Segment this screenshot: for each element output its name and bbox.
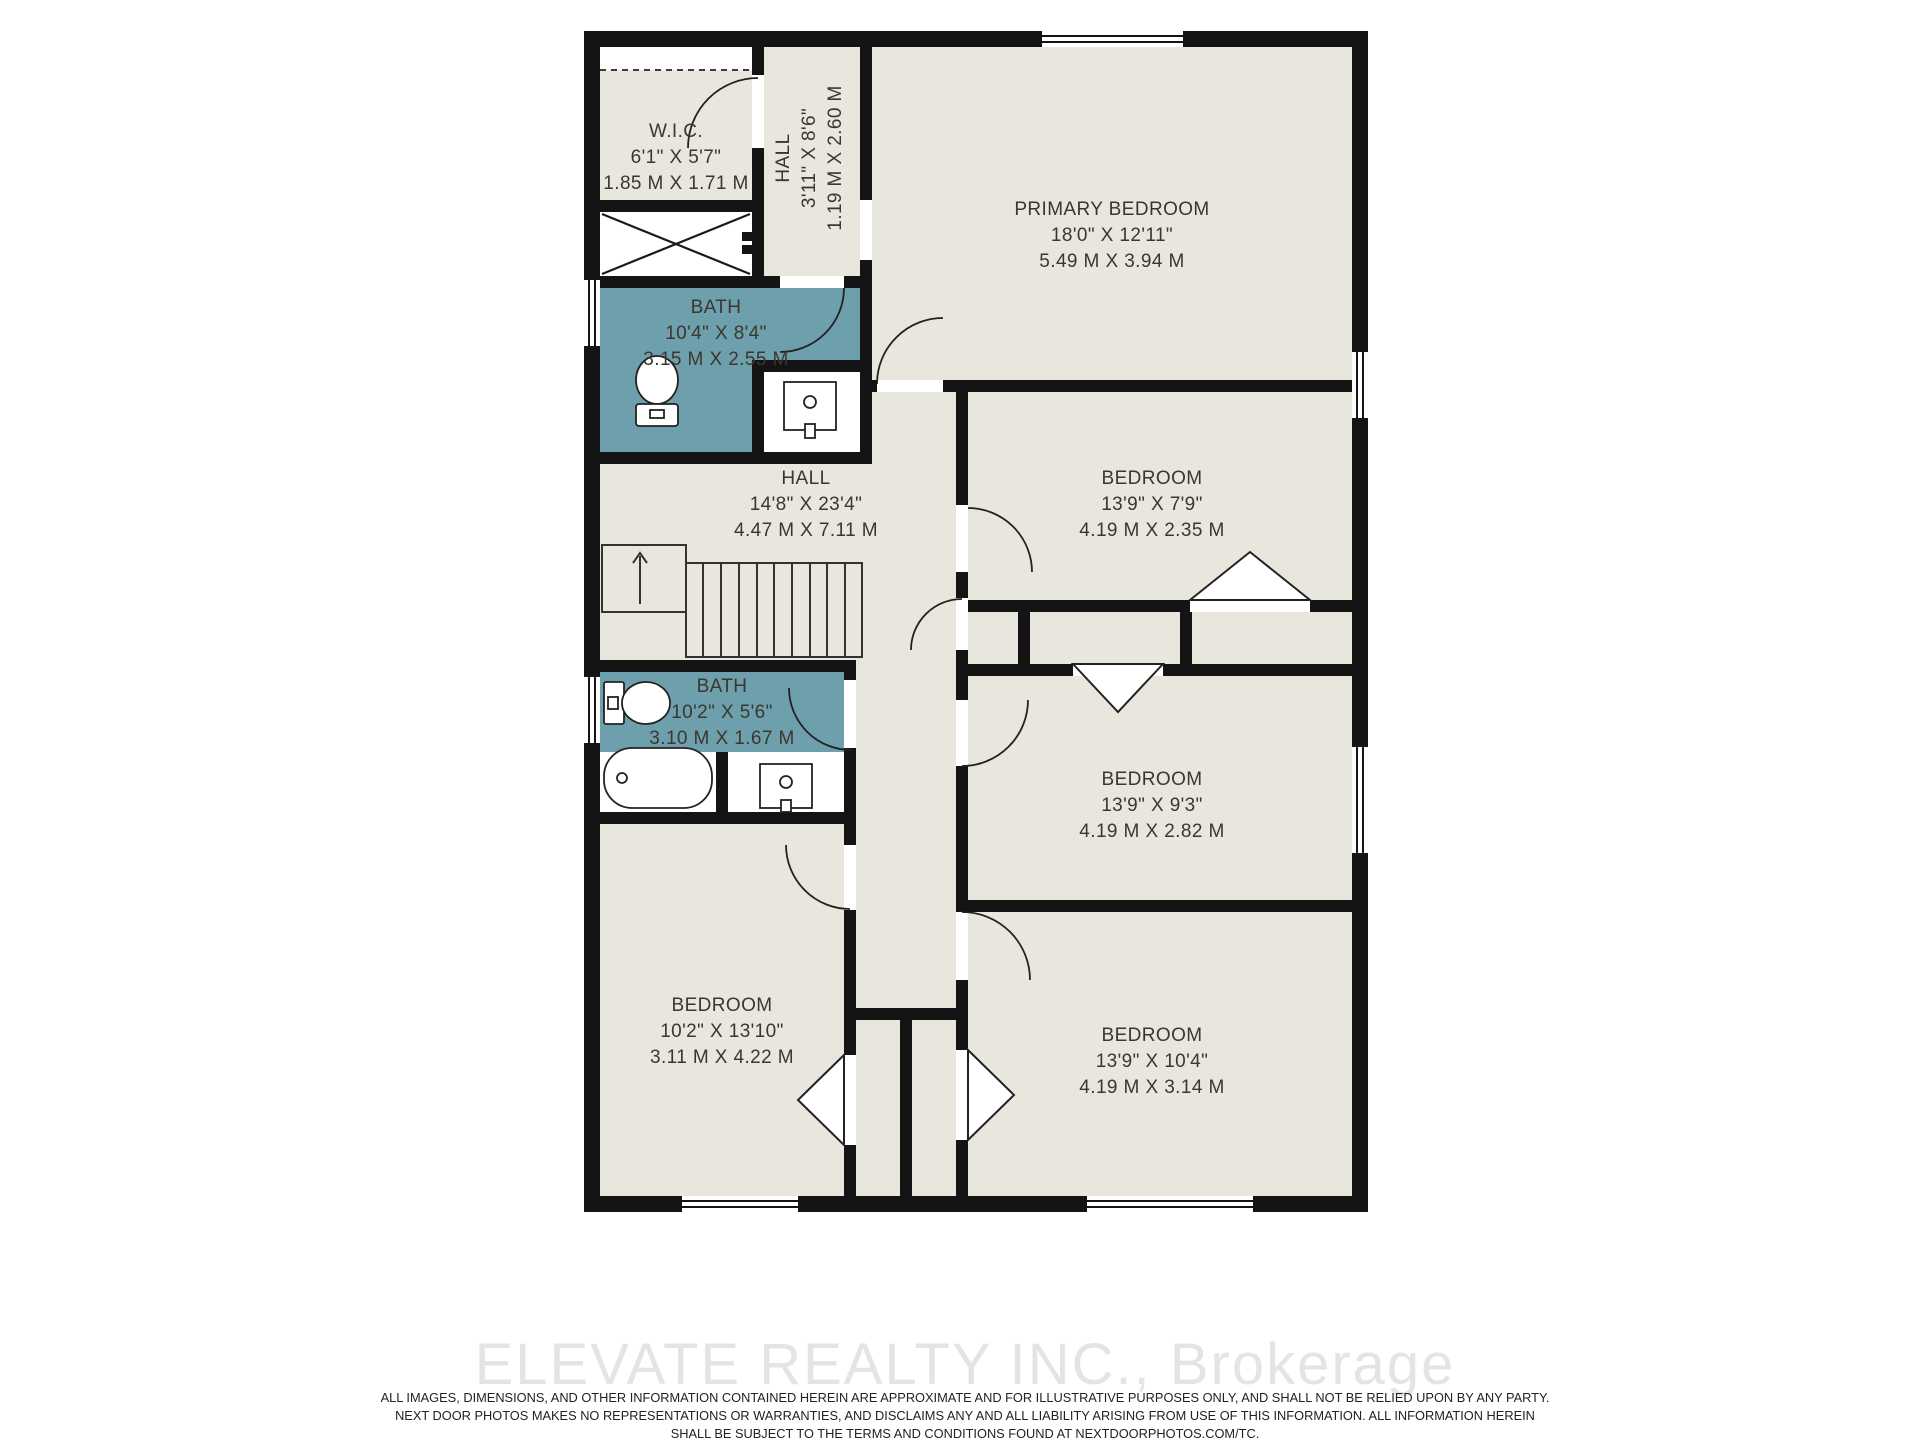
wall [956, 766, 968, 912]
room-dims-m: 3.10 M X 1.67 M [649, 726, 794, 752]
wall [856, 1008, 968, 1020]
room-dims-m: 1.85 M X 1.71 M [603, 171, 748, 197]
window [584, 675, 600, 745]
wall [956, 1140, 968, 1196]
room-dims-m: 1.19 M X 2.60 M [823, 85, 849, 230]
wall [584, 812, 856, 824]
exterior-wall-top [584, 31, 1368, 47]
floor-plan-page: W.I.C. 6'1" X 5'7" 1.85 M X 1.71 M HALL … [0, 0, 1920, 1440]
wall [844, 824, 856, 845]
room-dims-m: 4.19 M X 3.14 M [1079, 1075, 1224, 1101]
closet-opening [1073, 664, 1163, 676]
room-label-hall-upper: HALL 3'11" X 8'6" 1.19 M X 2.60 M [771, 85, 849, 230]
room-dims-m: 4.19 M X 2.82 M [1079, 819, 1224, 845]
bath-1-vanity-alcove [764, 372, 860, 452]
passage-opening [860, 200, 872, 260]
room-name: PRIMARY BEDROOM [1014, 197, 1209, 223]
room-dims-ft: 13'9" X 9'3" [1079, 793, 1224, 819]
disclaimer-text: ALL IMAGES, DIMENSIONS, AND OTHER INFORM… [381, 1389, 1550, 1440]
bath-2-vanity-alcove [728, 752, 844, 812]
door-opening [752, 75, 764, 148]
wall [860, 276, 872, 464]
room-dims-m: 5.49 M X 3.94 M [1014, 249, 1209, 275]
wall [844, 1145, 856, 1196]
wall [1018, 612, 1030, 664]
closet-opening [844, 1055, 856, 1145]
linen-closet [600, 212, 752, 276]
room-name: HALL [734, 466, 878, 492]
door-opening [956, 598, 968, 650]
room-name: BEDROOM [1079, 466, 1224, 492]
room-name: BEDROOM [650, 993, 794, 1019]
wall [968, 664, 1073, 676]
room-dims-m: 4.47 M X 7.11 M [734, 518, 878, 544]
room-dims-m: 3.15 M X 2.55 M [643, 347, 788, 373]
room-name: BATH [649, 674, 794, 700]
room-dims-ft: 10'4" X 8'4" [643, 321, 788, 347]
wall [584, 452, 872, 464]
room-dims-ft: 10'2" X 5'6" [649, 700, 794, 726]
wall [716, 752, 728, 812]
wall [752, 47, 764, 75]
room-dims-ft: 18'0" X 12'11" [1014, 223, 1209, 249]
door-opening [956, 505, 968, 572]
wall [1163, 664, 1352, 676]
wall [956, 650, 968, 700]
brokerage-watermark: ELEVATE REALTY INC., Brokerage [475, 1331, 1456, 1398]
bath-2-tub-alcove [600, 752, 716, 812]
window [584, 278, 600, 348]
door-opening [780, 276, 844, 288]
room-label-bedroom-4: BEDROOM 10'2" X 13'10" 3.11 M X 4.22 M [650, 993, 794, 1071]
disclaimer-line: ALL IMAGES, DIMENSIONS, AND OTHER INFORM… [381, 1389, 1550, 1407]
room-label-hall-main: HALL 14'8" X 23'4" 4.47 M X 7.11 M [734, 466, 878, 544]
closet-opening [1190, 600, 1310, 612]
room-dims-ft: 6'1" X 5'7" [603, 145, 748, 171]
room-label-bath-1: BATH 10'4" X 8'4" 3.15 M X 2.55 M [643, 295, 788, 373]
room-dims-ft: 3'11" X 8'6" [797, 85, 823, 230]
wall [943, 380, 1352, 392]
room-label-bath-2: BATH 10'2" X 5'6" 3.10 M X 1.67 M [649, 674, 794, 752]
wall [1180, 612, 1192, 664]
room-label-bedroom-5: BEDROOM 13'9" X 10'4" 4.19 M X 3.14 M [1079, 1023, 1224, 1101]
door-opening [877, 380, 943, 392]
window [1352, 745, 1368, 855]
room-label-bedroom-2: BEDROOM 13'9" X 7'9" 4.19 M X 2.35 M [1079, 466, 1224, 544]
wall [956, 392, 968, 505]
room-dims-ft: 13'9" X 10'4" [1079, 1049, 1224, 1075]
room-dims-ft: 10'2" X 13'10" [650, 1019, 794, 1045]
wall [1310, 600, 1352, 612]
window [680, 1196, 800, 1212]
room-label-primary-bedroom: PRIMARY BEDROOM 18'0" X 12'11" 5.49 M X … [1014, 197, 1209, 275]
wall [968, 900, 1352, 912]
room-label-wic: W.I.C. 6'1" X 5'7" 1.85 M X 1.71 M [603, 119, 748, 197]
door-opening [956, 700, 968, 766]
wall [860, 260, 872, 276]
door-opening [956, 912, 968, 980]
door-opening [844, 845, 856, 910]
closet-opening [956, 1050, 968, 1140]
wall [956, 572, 968, 598]
wall [600, 200, 764, 212]
wall [860, 47, 872, 200]
window [1085, 1196, 1255, 1212]
room-dims-m: 4.19 M X 2.35 M [1079, 518, 1224, 544]
room-name: BEDROOM [1079, 1023, 1224, 1049]
wic-shelf-strip [600, 47, 752, 70]
room-name: W.I.C. [603, 119, 748, 145]
wall [752, 212, 764, 276]
room-name: BATH [643, 295, 788, 321]
room-label-bedroom-3: BEDROOM 13'9" X 9'3" 4.19 M X 2.82 M [1079, 767, 1224, 845]
wall [968, 600, 1190, 612]
wall [584, 660, 856, 672]
disclaimer-line: SHALL BE SUBJECT TO THE TERMS AND CONDIT… [381, 1425, 1550, 1440]
room-name: BEDROOM [1079, 767, 1224, 793]
exterior-wall-right [1352, 31, 1368, 1212]
window [1352, 350, 1368, 420]
wall [844, 910, 856, 1055]
room-dims-ft: 14'8" X 23'4" [734, 492, 878, 518]
wall [600, 276, 780, 288]
room-dims-m: 3.11 M X 4.22 M [650, 1045, 794, 1071]
exterior-wall-left [584, 31, 600, 1212]
door-opening [844, 680, 856, 748]
wall [752, 372, 764, 452]
room-name: HALL [771, 85, 797, 230]
window [1040, 31, 1185, 47]
wall [844, 672, 856, 680]
room-dims-ft: 13'9" X 7'9" [1079, 492, 1224, 518]
disclaimer-line: NEXT DOOR PHOTOS MAKES NO REPRESENTATION… [381, 1407, 1550, 1425]
wall [900, 1020, 912, 1196]
